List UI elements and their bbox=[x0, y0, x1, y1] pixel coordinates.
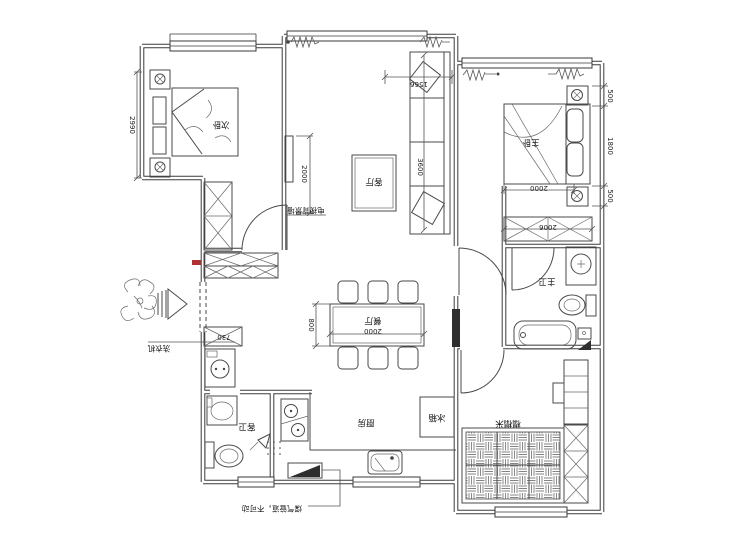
master-bedroom-furniture bbox=[463, 69, 592, 241]
curtain-icon bbox=[420, 37, 450, 47]
dim-500-bottom: 500 bbox=[606, 189, 614, 202]
guest-bath-fixtures bbox=[205, 396, 281, 468]
label-tv-wall: 电视背景墙 bbox=[287, 206, 325, 216]
washbasin-icon bbox=[207, 396, 237, 425]
curtain-icon bbox=[463, 70, 496, 80]
dim-800: 800 bbox=[307, 318, 315, 331]
dim-1800: 1800 bbox=[606, 137, 614, 155]
dim-1566: 1566 bbox=[410, 80, 428, 88]
label-guest-bath: 客卫 bbox=[238, 421, 256, 432]
dim-2006: 2006 bbox=[539, 223, 557, 231]
toilet-icon bbox=[559, 295, 585, 315]
washing-machine-icon bbox=[205, 349, 235, 387]
entry-arrow-icon bbox=[168, 289, 187, 319]
door-arcs bbox=[200, 205, 554, 393]
chair bbox=[398, 347, 418, 369]
floor-plan: 次卧 客厅 主卧 主卫 餐厅 厨房 客卫 榻榻米 冰箱 洗衣机 电视背景墙 煤气… bbox=[0, 0, 740, 537]
chair bbox=[338, 281, 358, 303]
label-secondary-bedroom: 次卧 bbox=[212, 119, 230, 130]
entry-opening bbox=[200, 282, 206, 332]
label-fridge: 冰箱 bbox=[428, 412, 446, 423]
label-master-bath: 主卫 bbox=[538, 276, 556, 287]
master-bed bbox=[504, 104, 590, 184]
dim-2000-tv: 2000 bbox=[300, 165, 308, 183]
floor-plan-canvas: 次卧 客厅 主卧 主卫 餐厅 厨房 客卫 榻榻米 冰箱 洗衣机 电视背景墙 煤气… bbox=[0, 0, 740, 537]
label-washing-machine: 洗衣机 bbox=[147, 344, 170, 354]
label-dining-room: 餐厅 bbox=[364, 315, 382, 325]
entry-symbols bbox=[121, 260, 201, 321]
secondary-bedroom-furniture bbox=[150, 70, 238, 250]
curtain-icon bbox=[548, 69, 584, 79]
red-wall-mark bbox=[192, 260, 201, 265]
dim-500-top: 500 bbox=[606, 89, 614, 102]
label-living-room: 客厅 bbox=[365, 176, 383, 187]
dim-730: 730 bbox=[217, 333, 230, 341]
label-kitchen: 厨房 bbox=[357, 417, 374, 428]
label-gas-note: 煤气管道，不可动 bbox=[242, 504, 302, 514]
chair bbox=[368, 281, 388, 303]
shower-icon bbox=[258, 434, 270, 448]
dim-2000-bed: 2000 bbox=[530, 184, 548, 192]
shoe-cabinet bbox=[204, 253, 278, 266]
tatami-furniture bbox=[462, 360, 588, 503]
label-tatami-room: 榻榻米 bbox=[495, 418, 521, 429]
gas-meter-icon bbox=[290, 465, 320, 477]
chair bbox=[338, 347, 358, 369]
dim-3600: 3600 bbox=[416, 158, 424, 176]
toilet-icon bbox=[205, 442, 214, 468]
kitchen-fixtures bbox=[281, 392, 456, 506]
wall-pier bbox=[452, 309, 460, 347]
label-master-bedroom: 主卧 bbox=[522, 137, 540, 148]
pillow-icon bbox=[412, 192, 445, 225]
chair bbox=[368, 347, 388, 369]
dim-2000-table: 2000 bbox=[364, 327, 382, 335]
master-bath-fixtures bbox=[514, 247, 596, 350]
dim-2990: 2990 bbox=[128, 116, 136, 134]
chair bbox=[398, 281, 418, 303]
plant-icon bbox=[121, 279, 156, 321]
